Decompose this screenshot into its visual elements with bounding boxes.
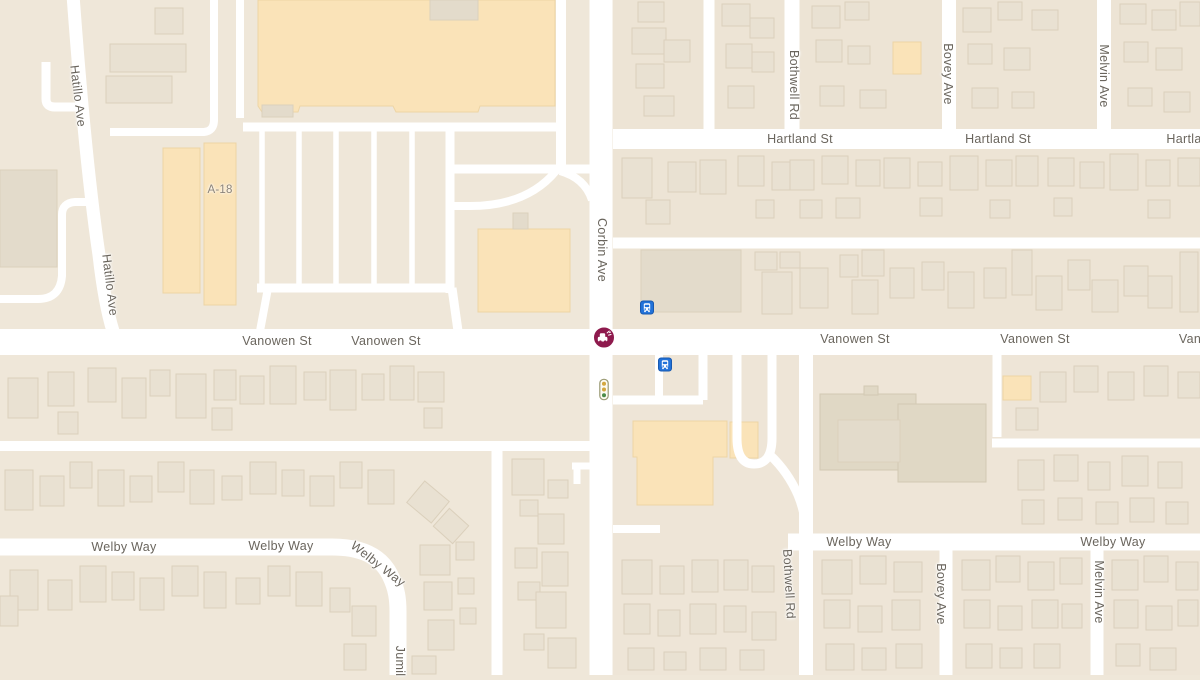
traffic-incident-icon: [592, 325, 617, 350]
map-canvas[interactable]: Hatillo AveHatillo AveCorbin AveHartland…: [0, 0, 1200, 675]
bus-stop-icon[interactable]: [658, 358, 672, 377]
bus-stop-icon[interactable]: [640, 301, 654, 320]
bus-stop-icon: [658, 358, 672, 372]
bus-stop-icon: [640, 301, 654, 315]
map-viewport[interactable]: { "colors": { "background": "#EFE7D9", "…: [0, 0, 1200, 675]
traffic-incident-icon[interactable]: [592, 325, 617, 355]
